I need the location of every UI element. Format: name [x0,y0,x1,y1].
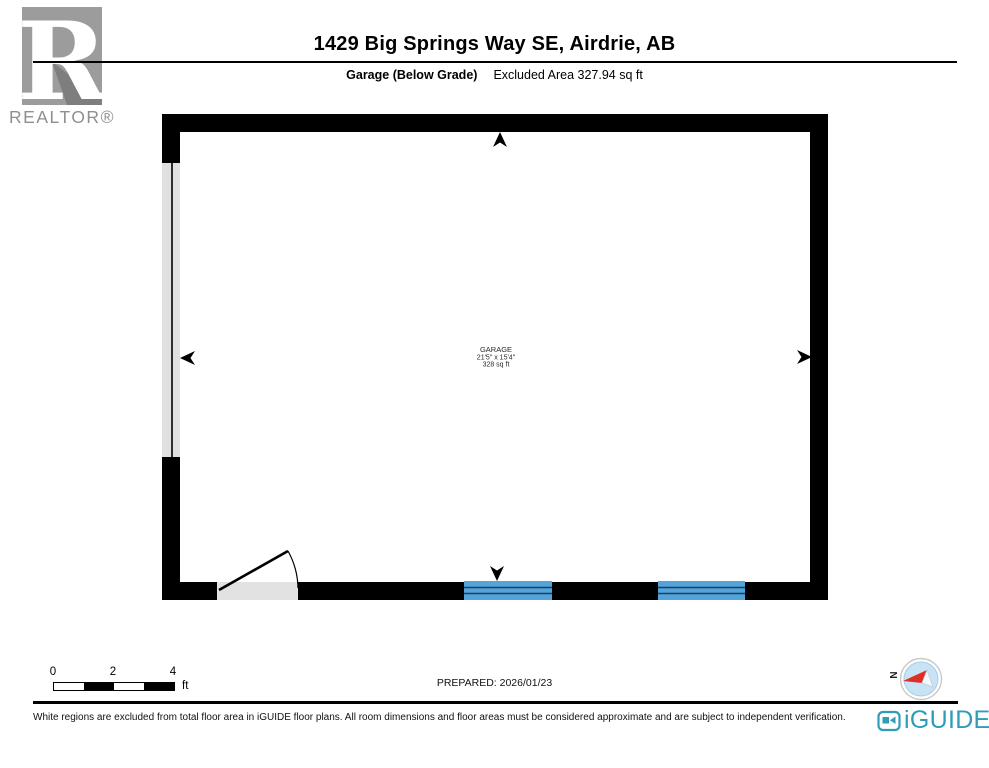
realtor-logo: R REALTOR® [6,7,118,128]
room-dimensions: 21'5" x 15'4" [477,355,516,362]
prepared-date: PREPARED: 2026/01/23 [0,677,989,689]
title-divider [33,61,957,63]
disclaimer-text: White regions are excluded from total fl… [33,712,846,723]
iguide-camera-icon [877,709,901,732]
footer-divider [33,701,958,704]
iguide-logo: iGUIDE [877,706,989,735]
realtor-wordmark: REALTOR® [6,107,118,128]
window-2 [658,581,745,600]
garage-door-opening [162,163,180,457]
floorplan-drawing: GARAGE 21'5" x 15'4" 328 sq ft [0,0,989,650]
window-1 [464,581,552,600]
realtor-letter: R [22,7,102,105]
iguide-wordmark: iGUIDE [904,706,989,735]
floorplan-page: R REALTOR® 1429 Big Springs Way SE, Aird… [0,0,989,768]
room-name: GARAGE [480,345,512,354]
room-area: 328 sq ft [483,362,510,369]
compass-north-label: N [889,671,900,678]
realtor-block-r-icon: R [22,7,102,105]
